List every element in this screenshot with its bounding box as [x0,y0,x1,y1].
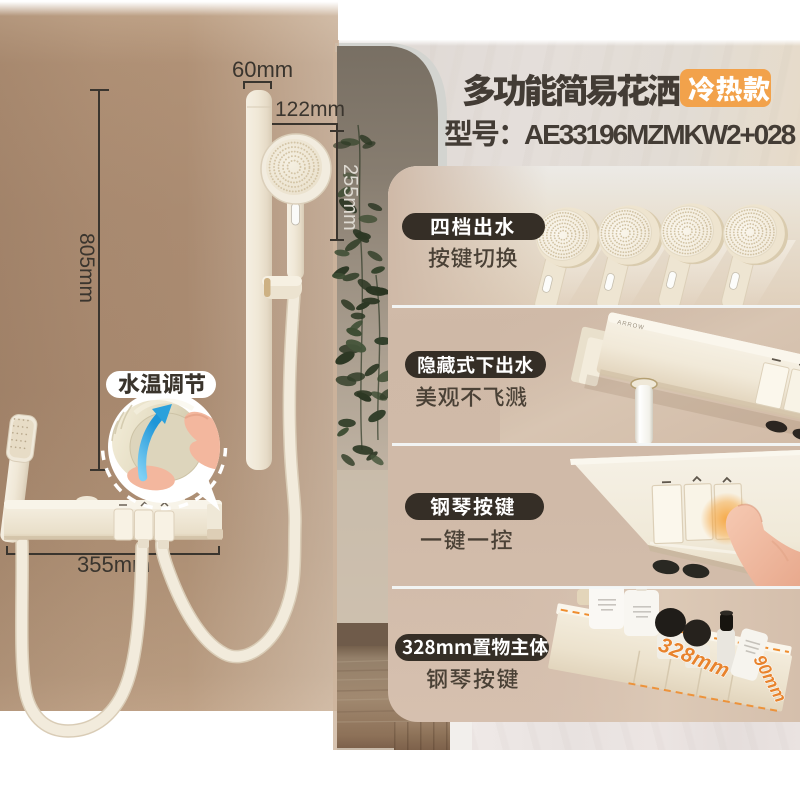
svg-text:122mm: 122mm [275,98,345,121]
svg-text:60mm: 60mm [232,57,293,82]
svg-text:AE33196MZMKW2+028: AE33196MZMKW2+028 [524,119,796,150]
svg-text:255mm: 255mm [339,164,361,231]
svg-text:805mm: 805mm [75,233,98,303]
